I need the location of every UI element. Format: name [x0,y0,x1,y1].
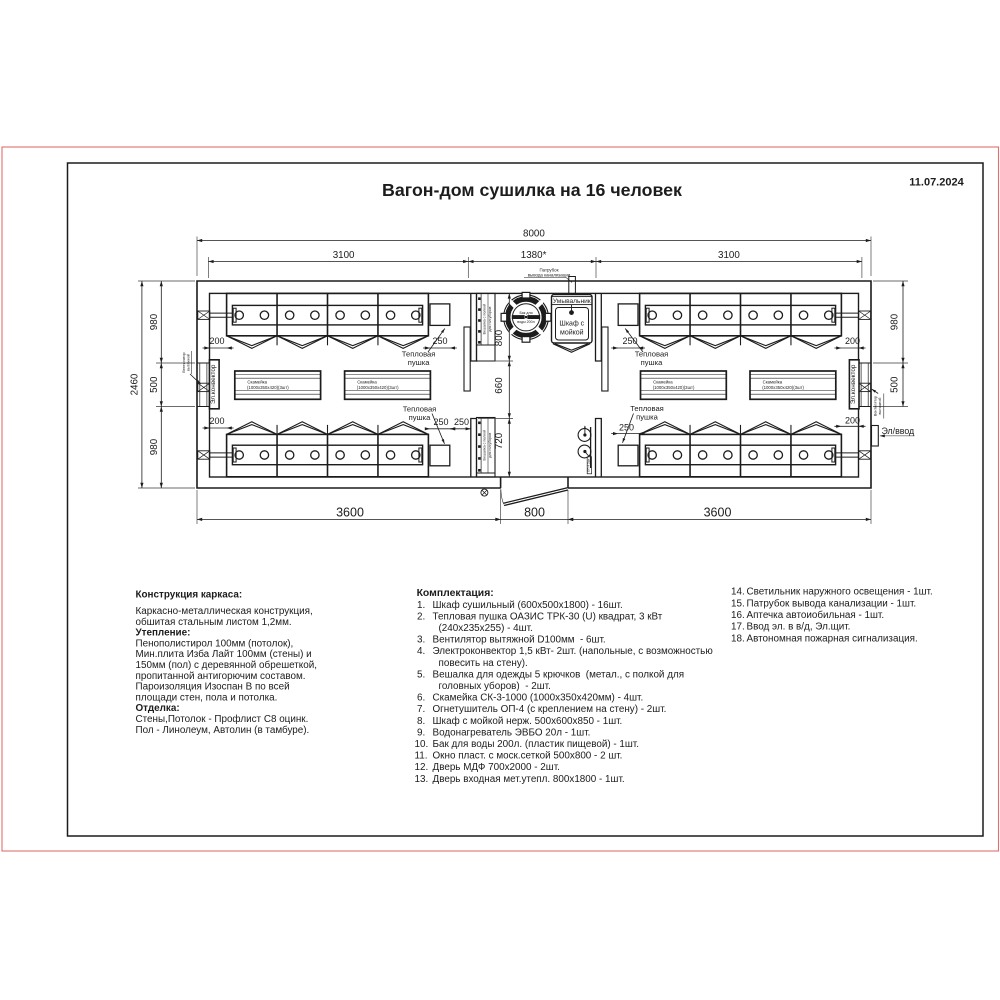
svg-text:200: 200 [845,415,860,425]
svg-text:8000: 8000 [523,229,545,240]
svg-text:обшитая стальным листом 1,2мм.: обшитая стальным листом 1,2мм. [136,617,292,628]
svg-text:Вешалка с полкой: Вешалка с полкой [483,430,487,460]
svg-text:Вешалка для одежды 5 крючков: Вешалка для одежды 5 крючков (метал., с … [433,669,685,680]
svg-text:15.: 15. [731,598,745,609]
svg-text:для гол.уборов: для гол.уборов [488,433,492,458]
svg-text:250: 250 [454,417,469,427]
svg-text:Автономная пожарная сигнализац: Автономная пожарная сигнализация. [747,633,918,644]
svg-text:4.: 4. [417,646,425,657]
svg-text:3600: 3600 [704,506,732,520]
svg-text:пушка: пушка [409,413,431,422]
svg-text:660: 660 [494,377,505,394]
svg-text:Шкаф сушильный (600х500х1800): Шкаф сушильный (600х500х1800) - 16шт. [433,600,623,611]
svg-text:воды 200л: воды 200л [517,320,535,324]
svg-text:Эл/ввод: Эл/ввод [882,426,915,436]
svg-text:пушка: пушка [641,358,663,367]
svg-text:Огнетушитель ОП-4 (с крепление: Огнетушитель ОП-4 (с креплением на стену… [433,704,667,715]
svg-text:ОП-4 2шт: ОП-4 2шт [587,458,591,472]
svg-text:Вагон-дом сушилка на 16 челове: Вагон-дом сушилка на 16 человек [382,180,682,200]
svg-text:Вешалка с полкой: Вешалка с полкой [483,304,487,334]
svg-text:Пенополистирол 100мм (потолок): Пенополистирол 100мм (потолок), [136,638,294,649]
svg-text:пушка: пушка [408,358,430,367]
svg-text:Патрубок вывода канализации -: Патрубок вывода канализации - 1шт. [747,598,917,609]
svg-text:9.: 9. [417,727,425,738]
svg-text:980: 980 [889,313,900,330]
svg-text:Ввод эл. в в/д, Эл.щит.: Ввод эл. в в/д, Эл.щит. [747,622,851,633]
svg-text:5.: 5. [417,669,425,680]
svg-text:500: 500 [149,376,160,393]
svg-text:головных уборов) - 2шт.: головных уборов) - 2шт. [439,681,551,692]
svg-text:(1000х350х420)(3шт): (1000х350х420)(3шт) [653,385,695,390]
svg-text:200: 200 [209,336,224,346]
svg-text:2460: 2460 [129,373,140,395]
svg-text:Окно пласт. с моск.сеткой 500х: Окно пласт. с моск.сеткой 500х800 - 2 шт… [433,751,623,762]
svg-text:200: 200 [209,416,224,426]
svg-text:500: 500 [889,376,900,393]
svg-text:2.: 2. [417,611,425,622]
svg-text:250: 250 [622,336,637,346]
svg-text:3.: 3. [417,635,425,646]
svg-text:пушка: пушка [636,412,658,421]
svg-text:Скамейка СК-3-1000 (1000х350х4: Скамейка СК-3-1000 (1000х350х420мм) - 4ш… [433,693,644,704]
svg-text:3600: 3600 [336,506,364,520]
svg-text:(1000х350х420)(3шт): (1000х350х420)(3шт) [247,385,289,390]
svg-text:Отделка:: Отделка: [136,703,180,714]
svg-text:Каркасно-металлическая констру: Каркасно-металлическая конструкция, [136,606,313,617]
svg-text:980: 980 [149,313,160,330]
svg-text:Аптечка автоиобильная - 1шт.: Аптечка автоиобильная - 1шт. [747,610,885,621]
svg-text:Эл.конвектор: Эл.конвектор [850,364,857,404]
svg-text:17.: 17. [731,622,745,633]
svg-text:150мм (пол) с деревянной обреш: 150мм (пол) с деревянной обрешеткой, [136,660,318,671]
svg-text:1380*: 1380* [521,250,547,261]
svg-text:Шкаф с: Шкаф с [559,321,584,328]
svg-text:(1000х350х420)(3шт): (1000х350х420)(3шт) [762,385,804,390]
svg-text:Пол - Линолеум, Автолин (в там: Пол - Линолеум, Автолин (в тамбуре). [136,725,310,736]
svg-text:16.: 16. [731,610,745,621]
svg-text:Дверь МДФ 700х2000 - 2шт.: Дверь МДФ 700х2000 - 2шт. [433,762,560,773]
svg-text:8.: 8. [417,716,425,727]
svg-text:800: 800 [494,329,505,346]
svg-text:Вентилятор вытяжной D100мм -: Вентилятор вытяжной D100мм - 6шт. [433,635,606,646]
svg-text:повесить на стену).: повесить на стену). [439,658,528,669]
svg-text:200: 200 [845,336,860,346]
svg-text:вывода канализации: вывода канализации [528,272,571,277]
svg-text:Конструкция каркаса:: Конструкция каркаса: [136,590,243,601]
svg-text:вытяжной: вытяжной [878,398,882,415]
svg-text:Бак для: Бак для [519,311,532,315]
svg-text:13.: 13. [415,774,429,785]
svg-text:7.: 7. [417,704,425,715]
svg-text:Водонагреватель ЭВБО 20л - 1шт: Водонагреватель ЭВБО 20л - 1шт. [433,727,591,738]
svg-text:Эл.конвектор: Эл.конвектор [210,364,217,404]
svg-text:вытяжной: вытяжной [186,354,190,371]
svg-text:Светильник наружного освещения: Светильник наружного освещения - 1шт. [747,587,933,598]
svg-text:6.: 6. [417,693,425,704]
svg-text:Бак для воды 200л. (пластик пи: Бак для воды 200л. (пластик пищевой) - 1… [433,739,639,750]
svg-text:14.: 14. [731,587,745,598]
svg-text:18.: 18. [731,633,745,644]
svg-text:Стены,Потолок - Профлист С8 оц: Стены,Потолок - Профлист С8 оцинк. [136,714,309,725]
svg-text:980: 980 [149,438,160,455]
svg-text:10.: 10. [415,739,429,750]
svg-text:площади стен, пола и потолка.: площади стен, пола и потолка. [136,692,278,703]
svg-text:3100: 3100 [333,250,355,261]
svg-text:Умывальник: Умывальник [553,298,591,305]
svg-text:(240х235х255) - 4шт.: (240х235х255) - 4шт. [439,623,533,634]
svg-text:Утепление:: Утепление: [136,628,191,639]
svg-text:Дверь входная мет.утепл. 800х1: Дверь входная мет.утепл. 800х1800 - 1шт. [433,774,625,785]
svg-text:11.07.2024: 11.07.2024 [909,177,964,189]
svg-text:Комплектация:: Комплектация: [417,588,494,599]
svg-text:12.: 12. [415,762,429,773]
svg-text:720: 720 [494,432,505,449]
svg-text:1.: 1. [417,600,425,611]
svg-text:мойкой: мойкой [560,328,584,336]
svg-text:11.: 11. [415,751,428,762]
svg-text:250: 250 [432,336,447,346]
svg-text:Тепловая пушка ОАЗИС ТРК-30 (U: Тепловая пушка ОАЗИС ТРК-30 (U) квадрат,… [433,611,663,622]
svg-text:Шкаф с мойкой нерж. 500х600х85: Шкаф с мойкой нерж. 500х600х850 - 1шт. [433,716,623,727]
svg-text:(1000х350х420)(3шт): (1000х350х420)(3шт) [357,385,399,390]
svg-text:для гол.уборов: для гол.уборов [488,307,492,332]
svg-text:Пароизоляция Изоспан В по всей: Пароизоляция Изоспан В по всей [136,682,290,693]
svg-text:3100: 3100 [718,250,740,261]
svg-text:Электроконвектор 1,5 кВт- 2шт.: Электроконвектор 1,5 кВт- 2шт. (напольны… [433,646,713,657]
svg-text:Мин.плита Изба Лайт 100мм (сте: Мин.плита Изба Лайт 100мм (стены) и [136,649,312,660]
svg-text:250: 250 [619,423,634,433]
svg-text:пропитанной антигорючим состав: пропитанной антигорючим составом. [136,671,306,682]
svg-text:800: 800 [524,506,545,520]
